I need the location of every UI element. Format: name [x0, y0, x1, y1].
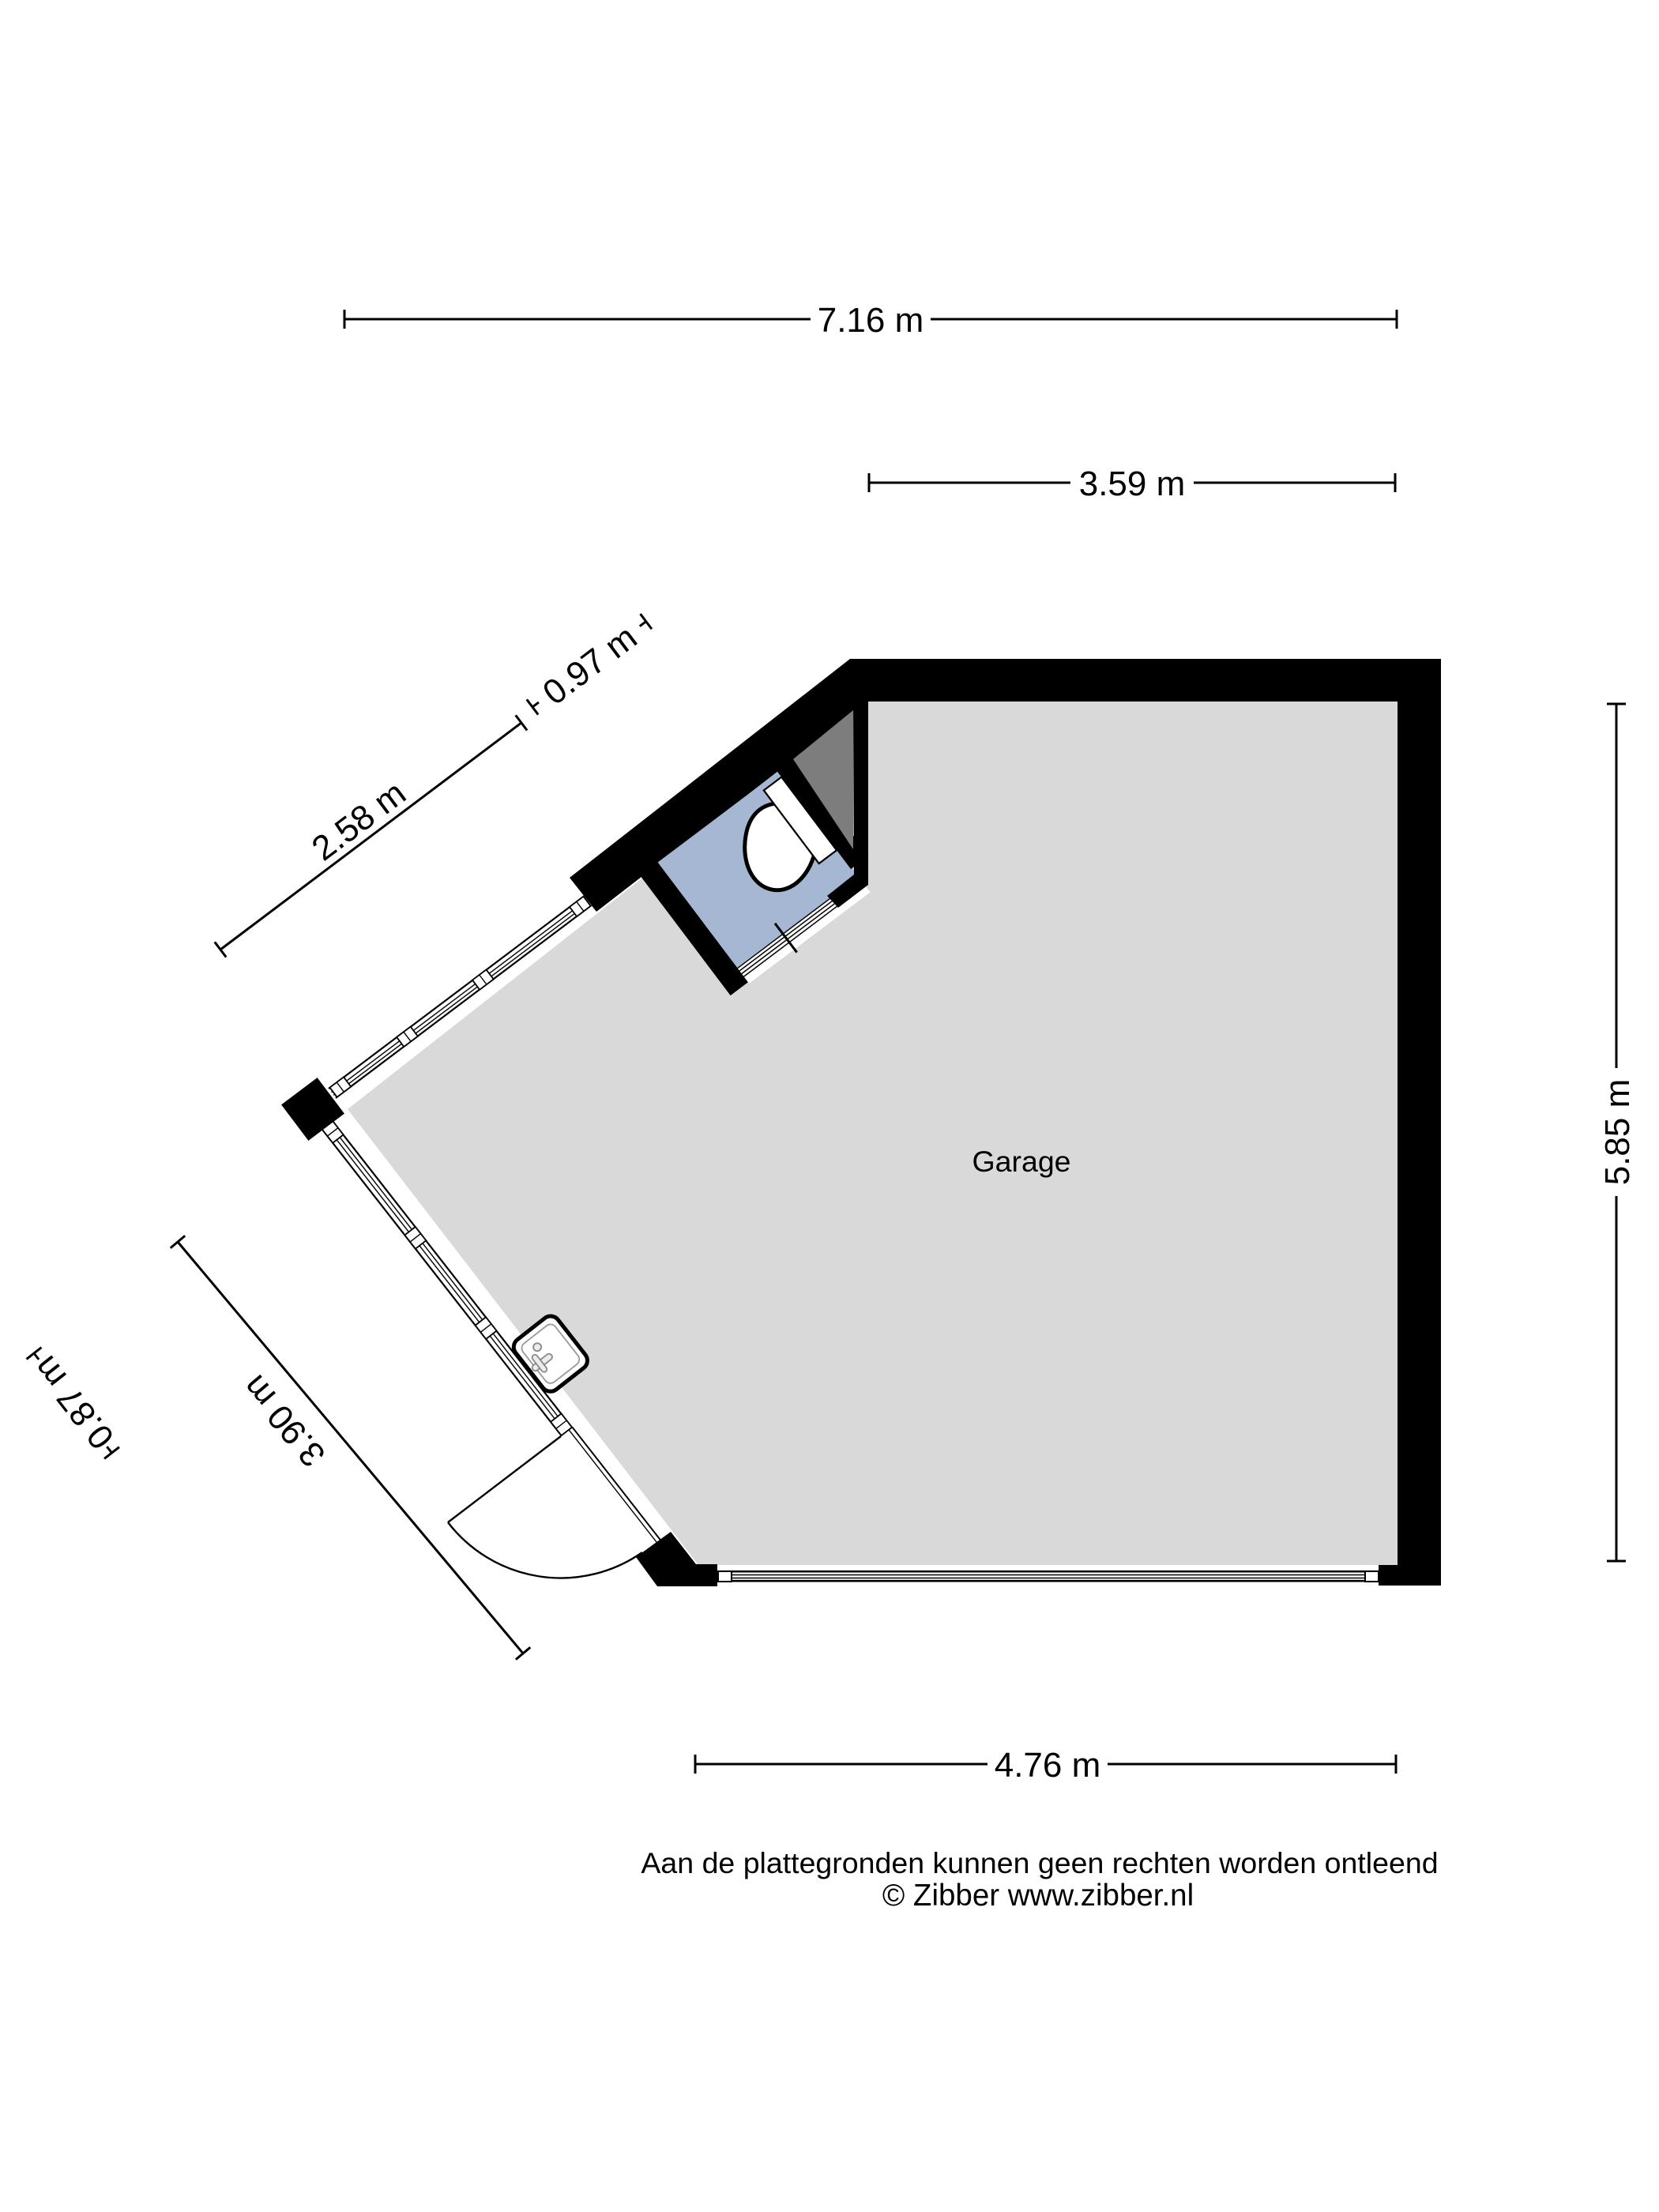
- svg-text:© Zibber www.zibber.nl: © Zibber www.zibber.nl: [882, 1879, 1194, 1913]
- svg-text:Aan de plattegronden kunnen ge: Aan de plattegronden kunnen geen rechten…: [641, 1846, 1438, 1879]
- svg-text:5.85 m: 5.85 m: [1598, 1079, 1637, 1186]
- svg-text:4.76 m: 4.76 m: [995, 1746, 1101, 1785]
- svg-text:Garage: Garage: [972, 1145, 1070, 1178]
- svg-text:7.16 m: 7.16 m: [818, 301, 924, 340]
- svg-text:3.59 m: 3.59 m: [1079, 465, 1186, 503]
